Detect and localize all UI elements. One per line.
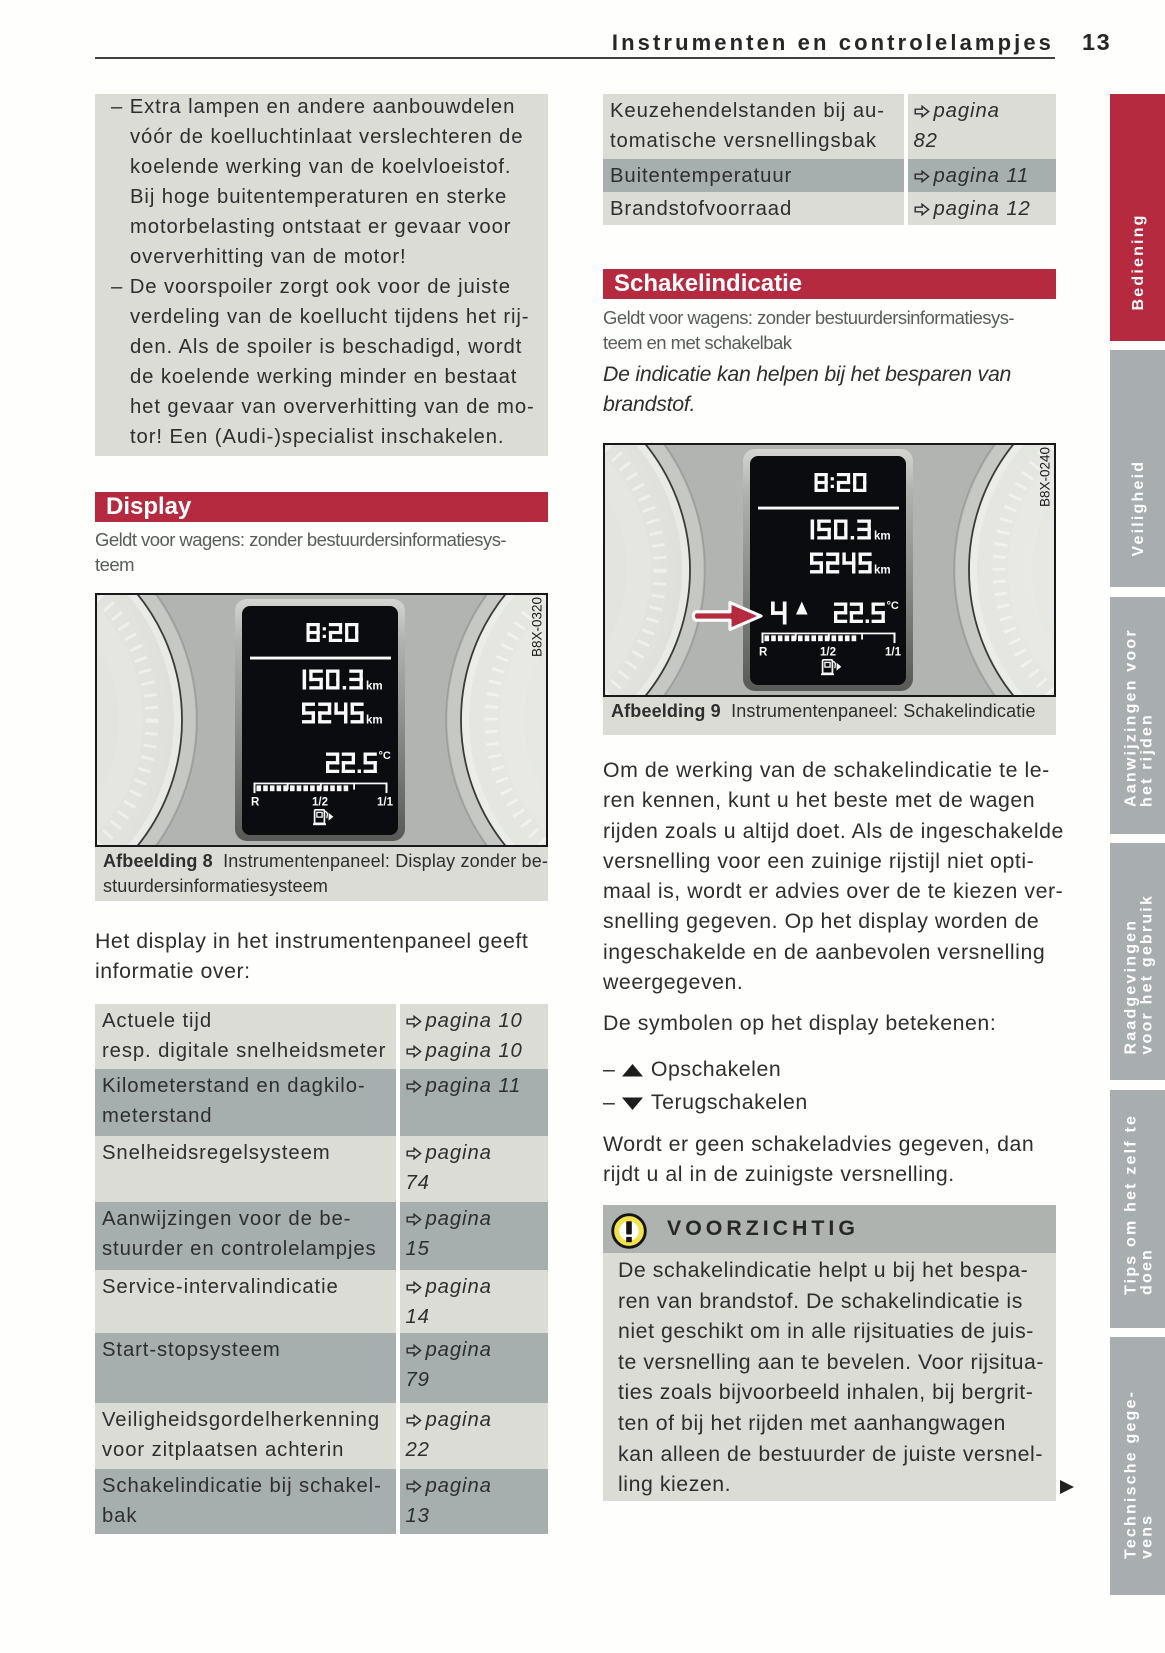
svg-text:vens: vens xyxy=(1138,1514,1155,1559)
svg-text:voor het gebruik: voor het gebruik xyxy=(1138,894,1155,1055)
svg-text:doen: doen xyxy=(1138,1248,1155,1295)
svg-text:het rijden: het rijden xyxy=(1138,713,1155,807)
svg-text:B8X-0320: B8X-0320 xyxy=(530,597,545,657)
svg-text:B8X-0240: B8X-0240 xyxy=(1038,447,1053,507)
svg-text:Aanwijzingen voor: Aanwijzingen voor xyxy=(1123,628,1140,807)
svg-text:Veiligheid: Veiligheid xyxy=(1130,460,1147,557)
svg-text:R: R xyxy=(251,797,260,809)
svg-text:1/1: 1/1 xyxy=(377,797,394,809)
svg-text:°C: °C xyxy=(379,750,391,762)
svg-text:°C: °C xyxy=(887,600,899,612)
svg-text:km: km xyxy=(366,681,383,693)
svg-text:1/1: 1/1 xyxy=(885,647,902,659)
svg-text:km: km xyxy=(874,565,891,577)
svg-text:1/2: 1/2 xyxy=(820,647,836,659)
svg-text:R: R xyxy=(759,647,768,659)
svg-text:Technische gege-: Technische gege- xyxy=(1123,1390,1140,1559)
svg-text:km: km xyxy=(874,531,891,543)
svg-text:km: km xyxy=(366,715,383,727)
svg-text:Tips om het zelf te: Tips om het zelf te xyxy=(1123,1114,1140,1295)
svg-text:1/2: 1/2 xyxy=(312,797,328,809)
svg-text:Bediening: Bediening xyxy=(1130,213,1147,310)
svg-text:Raadgevingen: Raadgevingen xyxy=(1123,919,1140,1055)
